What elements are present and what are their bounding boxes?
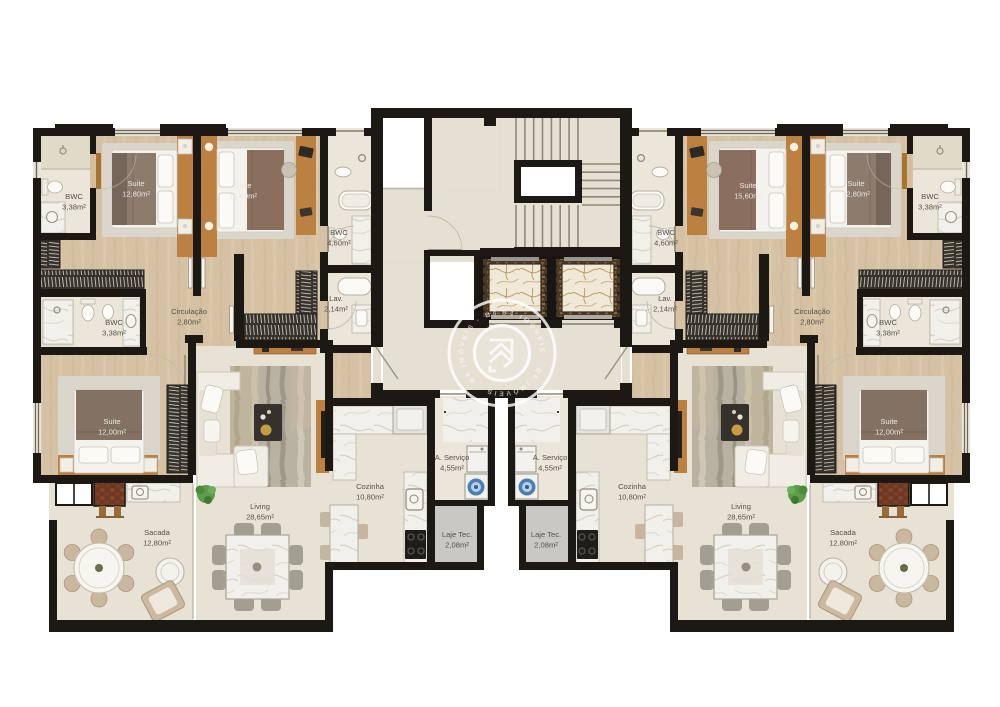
svg-text:12,00m²: 12,00m² [875,428,903,437]
svg-text:Suite: Suite [880,417,897,426]
svg-text:10,80m²: 10,80m² [356,493,384,502]
svg-text:2,80m²: 2,80m² [800,318,824,327]
svg-text:12,00m²: 12,00m² [98,428,126,437]
svg-text:28,65m²: 28,65m² [727,513,755,522]
svg-text:Lav.: Lav. [329,294,343,303]
svg-text:Lav.: Lav. [658,294,672,303]
svg-text:4,55m²: 4,55m² [538,464,562,473]
svg-text:28,65m²: 28,65m² [246,513,274,522]
svg-text:4,55m²: 4,55m² [440,464,464,473]
svg-text:Suite: Suite [234,181,251,190]
svg-text:Cozinha: Cozinha [618,482,647,491]
svg-text:BWC: BWC [65,192,83,201]
svg-text:3,38m²: 3,38m² [918,203,942,212]
svg-text:Living: Living [250,502,270,511]
svg-text:BWC: BWC [879,318,897,327]
svg-text:2,14m²: 2,14m² [324,305,348,314]
svg-text:4,60m²: 4,60m² [327,239,351,248]
svg-text:Sacada: Sacada [830,528,857,537]
svg-text:Living: Living [731,502,751,511]
svg-text:12,80m²: 12,80m² [842,190,870,199]
svg-text:3,38m²: 3,38m² [102,329,126,338]
svg-text:2,80m²: 2,80m² [177,318,201,327]
svg-text:BWC: BWC [657,228,675,237]
svg-text:Suite: Suite [847,179,864,188]
svg-text:10,80m²: 10,80m² [618,493,646,502]
svg-text:A. Serviço: A. Serviço [533,453,568,462]
svg-text:BWC: BWC [330,228,348,237]
svg-text:2,08m²: 2,08m² [534,541,558,550]
svg-text:15,60m²: 15,60m² [734,192,762,201]
svg-text:3,38m²: 3,38m² [876,329,900,338]
svg-text:12,80m²: 12,80m² [829,539,857,548]
svg-text:Circulação: Circulação [171,307,207,316]
svg-text:2,14m²: 2,14m² [653,305,677,314]
svg-text:4,60m²: 4,60m² [654,239,678,248]
svg-text:BWC: BWC [921,192,939,201]
svg-text:Cozinha: Cozinha [356,482,385,491]
svg-text:Suite: Suite [739,181,756,190]
svg-text:Laje Tec.: Laje Tec. [442,530,472,539]
svg-text:2,08m²: 2,08m² [445,541,469,550]
svg-text:A. Serviço: A. Serviço [435,453,470,462]
svg-text:Sacada: Sacada [144,528,171,537]
svg-text:15,60m²: 15,60m² [229,192,257,201]
svg-text:12,80m²: 12,80m² [143,539,171,548]
svg-text:BWC: BWC [105,318,123,327]
svg-text:Circulação: Circulação [794,307,830,316]
svg-text:Laje Tec.: Laje Tec. [531,530,561,539]
svg-text:12,80m²: 12,80m² [122,190,150,199]
svg-text:Suite: Suite [127,179,144,188]
svg-text:3,38m²: 3,38m² [62,203,86,212]
svg-text:Suite: Suite [103,417,120,426]
